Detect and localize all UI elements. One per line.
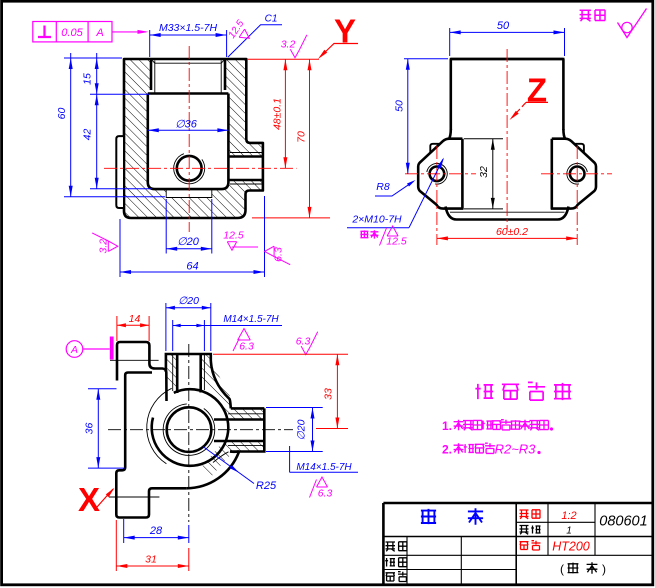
svg-text:6.3: 6.3 (296, 335, 311, 347)
svg-text:∅20: ∅20 (178, 295, 199, 307)
svg-text:2.: 2. (442, 443, 452, 457)
svg-text:): ) (602, 562, 606, 576)
svg-text:2×M10-7H: 2×M10-7H (351, 214, 402, 226)
svg-text:3.2: 3.2 (281, 39, 296, 51)
svg-text:X: X (78, 481, 100, 518)
svg-text:HT200: HT200 (552, 540, 590, 554)
svg-text:6.3: 6.3 (318, 488, 333, 500)
svg-text:(: ( (560, 562, 564, 576)
svg-text:15: 15 (82, 73, 94, 85)
svg-text:64: 64 (186, 261, 198, 273)
svg-text:R8: R8 (376, 181, 390, 193)
svg-text:50: 50 (497, 20, 510, 32)
svg-text:36: 36 (84, 423, 96, 435)
svg-text:M33×1.5-7H: M33×1.5-7H (159, 22, 217, 34)
svg-text:28: 28 (149, 525, 163, 537)
svg-text:1.: 1. (442, 419, 452, 433)
svg-text:31: 31 (145, 554, 157, 566)
svg-text:60±0.2: 60±0.2 (496, 226, 528, 238)
svg-text:M14×1.5-7H: M14×1.5-7H (223, 314, 279, 325)
svg-text:1:2: 1:2 (561, 510, 576, 522)
svg-text:A: A (95, 27, 103, 39)
svg-text:∅36: ∅36 (175, 119, 198, 131)
svg-text:14: 14 (129, 313, 141, 325)
svg-text:C1: C1 (265, 14, 278, 25)
svg-text:12.5: 12.5 (386, 236, 407, 248)
svg-text:R2~R3: R2~R3 (495, 442, 537, 457)
svg-text:6.3: 6.3 (239, 341, 254, 353)
svg-text:0.05: 0.05 (61, 27, 83, 39)
svg-text:6.3: 6.3 (273, 247, 285, 262)
svg-text:50: 50 (394, 100, 406, 112)
svg-text:3.2: 3.2 (98, 239, 110, 254)
svg-text:42: 42 (82, 129, 94, 141)
svg-text:12.5: 12.5 (223, 230, 244, 242)
svg-text:60: 60 (56, 108, 68, 120)
svg-text:∅20: ∅20 (177, 236, 200, 248)
svg-text:080601: 080601 (599, 514, 647, 530)
svg-text:A: A (70, 344, 78, 356)
svg-text:1: 1 (566, 526, 572, 537)
svg-text:70: 70 (296, 131, 308, 143)
svg-text:48±0.1: 48±0.1 (272, 98, 284, 130)
svg-text:33: 33 (323, 388, 335, 400)
svg-text:M14×1.5-7H: M14×1.5-7H (296, 462, 352, 473)
svg-text:R25: R25 (256, 480, 277, 492)
svg-text:32: 32 (478, 166, 490, 178)
svg-text:∅20: ∅20 (296, 419, 308, 440)
